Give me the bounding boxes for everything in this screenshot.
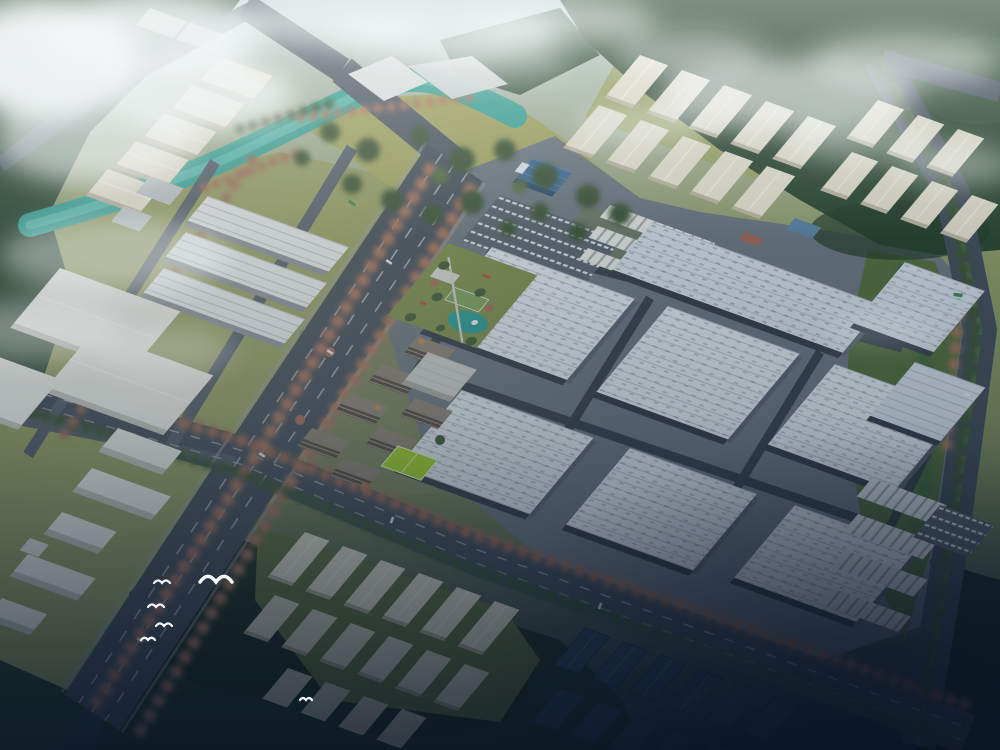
mist-cloud xyxy=(430,40,570,80)
mist-cloud xyxy=(825,314,935,346)
aerial-rendering xyxy=(0,0,1000,750)
mist-cloud xyxy=(0,217,230,293)
mist-cloud xyxy=(810,34,1000,86)
mist-cloud xyxy=(95,326,235,374)
mist-cloud xyxy=(575,107,705,143)
mist-cloud xyxy=(115,59,295,131)
scene-canvas xyxy=(0,0,1000,750)
